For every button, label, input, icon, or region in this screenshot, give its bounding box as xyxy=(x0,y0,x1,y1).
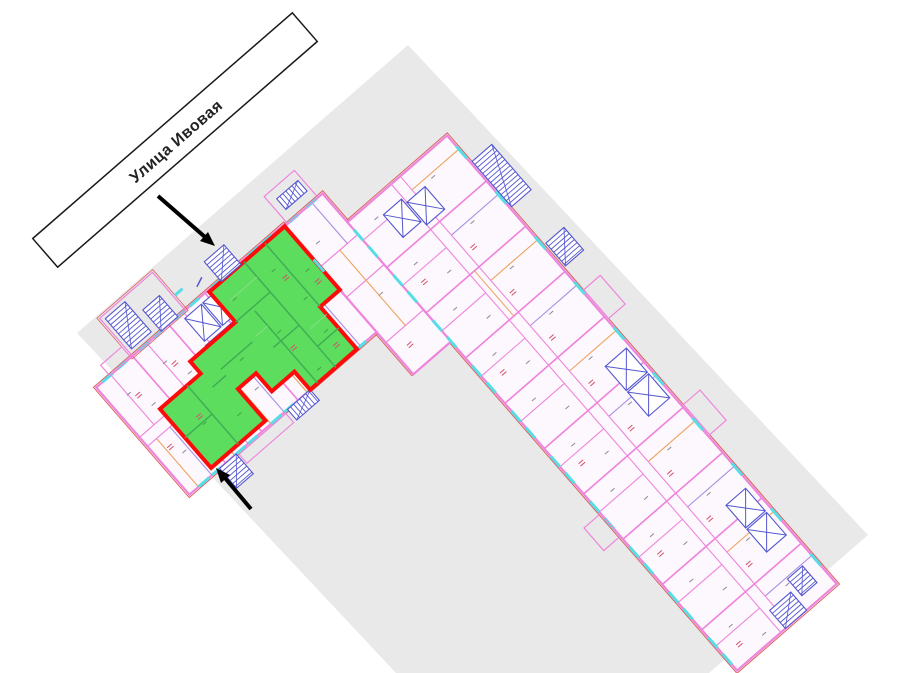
site-plan-page: Улица Ивовая xyxy=(0,0,897,673)
site-plan-canvas: Улица Ивовая xyxy=(0,0,897,673)
street-label-text: Улица Ивовая xyxy=(127,97,227,187)
